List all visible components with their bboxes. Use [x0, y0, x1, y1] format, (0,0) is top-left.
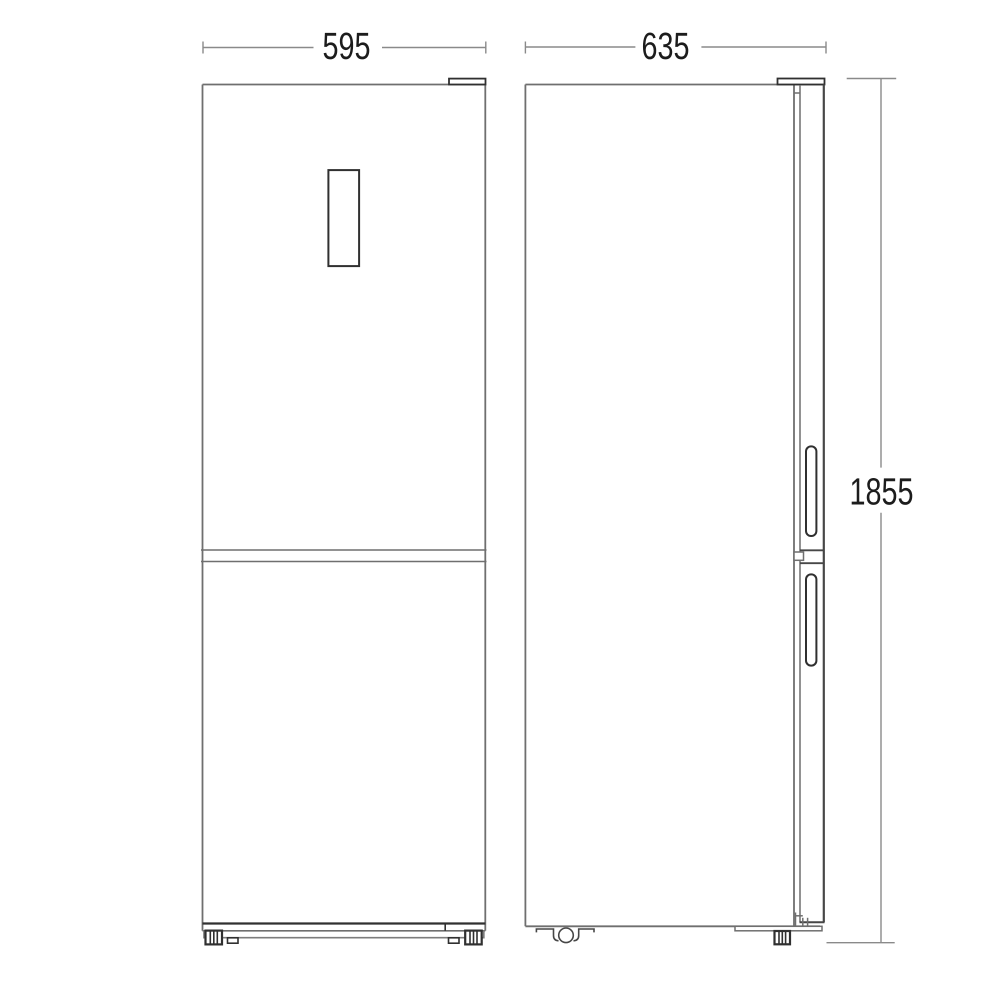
- svg-text:635: 635: [642, 26, 690, 68]
- svg-text:1855: 1855: [850, 472, 914, 514]
- svg-text:595: 595: [323, 26, 371, 68]
